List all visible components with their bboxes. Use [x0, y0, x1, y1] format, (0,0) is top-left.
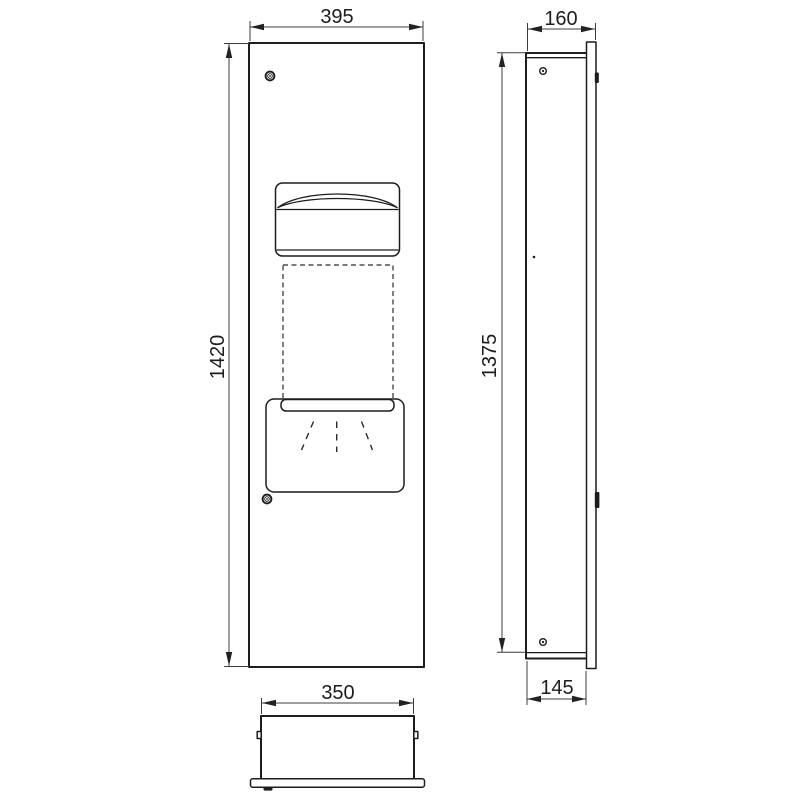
bottom-view: 350	[251, 682, 425, 791]
front-view: 395 1420	[207, 6, 424, 667]
dim-side-recess-depth: 145	[527, 661, 586, 705]
dim-side-height: 1375	[479, 53, 526, 653]
side-flange-outline	[587, 42, 597, 669]
screw-center	[269, 75, 271, 77]
arrowhead-icon	[499, 53, 505, 67]
side-view: 160 1375 145	[479, 8, 599, 705]
arrowhead-icon	[409, 24, 423, 30]
waste-bin-opening	[266, 399, 404, 492]
mounting-clip-icon	[595, 73, 599, 84]
bottom-housing-outline	[261, 716, 414, 779]
waste-opening-face	[266, 399, 404, 492]
dim-label-bottom-width: 350	[321, 682, 354, 704]
arrowhead-icon	[572, 696, 586, 702]
hinge-dot-icon	[533, 256, 536, 259]
side-body-outline	[526, 53, 587, 659]
screw-center	[266, 498, 268, 500]
arrowhead-icon	[250, 24, 264, 30]
dimension-drawing: 395 1420	[0, 0, 800, 800]
dim-label-side-height: 1375	[479, 334, 501, 379]
waste-flap-bar	[281, 400, 394, 412]
bottom-faceplate-outline	[251, 779, 425, 787]
screw-center	[542, 70, 544, 72]
dim-front-height: 1420	[207, 44, 249, 667]
arrowhead-icon	[262, 700, 276, 706]
arrowhead-icon	[499, 638, 505, 652]
towel-dispenser-opening	[276, 183, 400, 256]
screw-center	[542, 641, 544, 643]
technical-drawing-canvas: 395 1420	[0, 0, 800, 800]
mounting-clip-icon	[595, 492, 600, 508]
dim-front-width: 395	[250, 6, 423, 41]
front-panel-outline	[249, 43, 424, 667]
arrowhead-icon	[226, 44, 232, 58]
bottom-notch	[264, 787, 273, 791]
dim-bottom-width: 350	[262, 682, 414, 714]
arrowhead-icon	[399, 700, 413, 706]
mounting-clip-icon	[414, 732, 418, 739]
dim-side-depth: 160	[528, 8, 596, 51]
dim-label-side-recess-depth: 145	[540, 677, 573, 699]
dim-label-front-height: 1420	[207, 335, 229, 380]
dim-label-front-width: 395	[320, 6, 353, 28]
arrowhead-icon	[527, 696, 541, 702]
mounting-clip-icon	[257, 732, 261, 739]
arrowhead-icon	[581, 26, 595, 32]
arrowhead-icon	[226, 652, 232, 666]
dim-label-side-depth: 160	[544, 8, 577, 30]
arrowhead-icon	[528, 26, 542, 32]
